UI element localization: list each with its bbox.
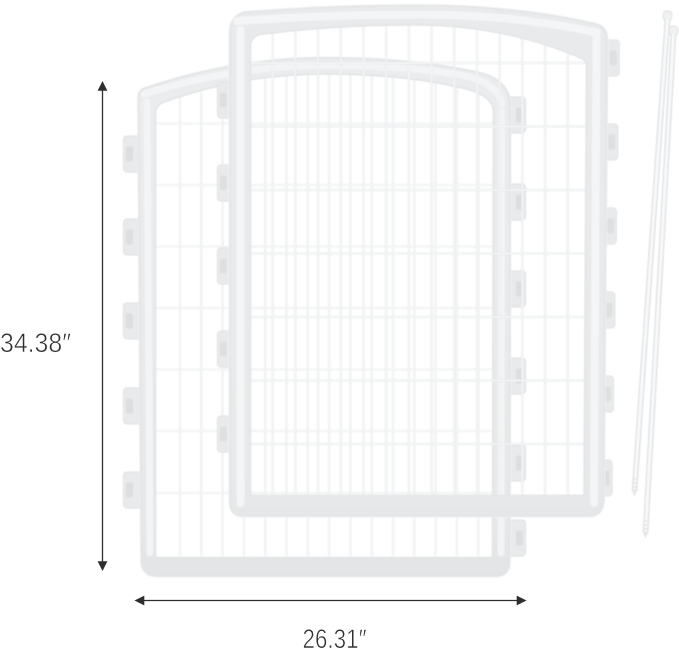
svg-text:26.31″: 26.31″ xyxy=(303,624,367,651)
svg-text:34.38″: 34.38″ xyxy=(0,328,71,358)
